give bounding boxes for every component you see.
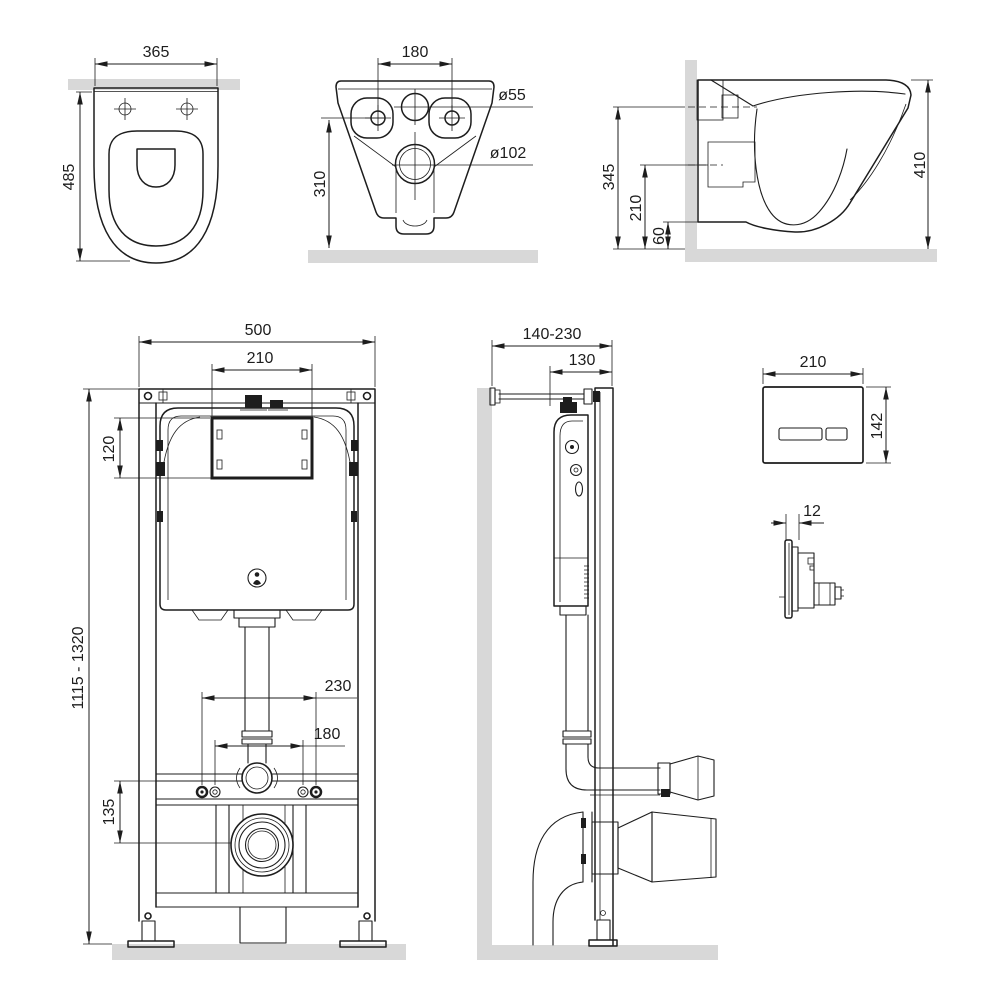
bowl-side-outline [698, 80, 911, 232]
cistern-side-outline [554, 415, 588, 606]
toilet-rear-view: 180 ø55 ø102 310 [308, 44, 538, 263]
mounting-hole-right [176, 98, 198, 120]
floor-surface [685, 249, 937, 262]
flush-plate-side-view: 12 [771, 503, 844, 618]
toilet-top-view: 365 485 [61, 44, 240, 263]
flush-pipe [245, 627, 269, 731]
dim-label-outlet-height: 210 [628, 195, 645, 222]
corner-screw [364, 913, 370, 919]
dim-label-plate-height: 142 [869, 413, 886, 440]
drain-assembly-side [533, 812, 716, 945]
dim-label-window-width: 210 [247, 350, 274, 367]
dim-label-inlet-height: 345 [601, 164, 618, 191]
dim-label-bowl-width: 365 [143, 44, 170, 61]
bowl-inlet-adapter [670, 756, 714, 800]
bowl-outline [94, 88, 218, 263]
dim-label-bolt-spacing: 180 [402, 44, 429, 61]
dim-label-window-height: 120 [101, 436, 118, 463]
dim-label-plate-width: 210 [800, 354, 827, 371]
dim-label-install-height: 1115 - 1320 [70, 626, 87, 709]
dim-label-inlet-diameter: ø55 [498, 87, 526, 104]
drain-outlet [231, 814, 293, 876]
dim-label-outlet-drop: 135 [101, 799, 118, 826]
dim-label-bowl-height: 410 [912, 152, 929, 179]
flush-pipe-connector [242, 763, 272, 793]
frame-side-view: 140-230 130 [477, 326, 718, 960]
dim-label-frame-width: 500 [245, 322, 272, 339]
dim-label-bottom-clearance: 60 [651, 227, 668, 245]
outlet-connector [708, 142, 755, 187]
flush-button-icon [248, 569, 266, 587]
dim-label-rear-height: 310 [312, 171, 329, 198]
inspection-window [212, 418, 312, 478]
toilet-side-view: 345 210 60 410 [601, 60, 937, 262]
flush-pipe-flange [234, 610, 280, 627]
valve-connector [270, 400, 283, 408]
filling-valve-connector [245, 395, 262, 408]
mounting-hole-left [114, 98, 136, 120]
flush-button-small [826, 428, 847, 440]
technical-drawing-sheet: 365 485 180 ø55 [0, 0, 1000, 1000]
dim-label-outlet-diameter: ø102 [490, 145, 527, 162]
bottom-crossbar [156, 893, 358, 907]
cistern-outline [160, 408, 354, 610]
frame-profile [697, 80, 723, 120]
corner-screw [364, 393, 371, 400]
wall-surface [685, 60, 697, 249]
dim-label-outer-stud-spacing: 230 [325, 678, 352, 695]
flush-plate [763, 387, 863, 463]
flush-area-outline [137, 149, 175, 187]
drawing-canvas: 365 485 180 ø55 [0, 0, 1000, 1000]
dim-label-bowl-depth: 485 [61, 164, 78, 191]
flush-button-large [779, 428, 822, 440]
corner-screw [145, 913, 151, 919]
seat-rim-line [753, 91, 905, 106]
flush-plate-front-view: 210 142 [763, 354, 891, 463]
frame-front-view: 1115 - 1320 500 210 120 [70, 322, 406, 960]
dim-label-wall-distance: 140-230 [523, 326, 582, 343]
bolt-hole-right [439, 105, 465, 131]
flush-pipe-side [566, 615, 588, 731]
valve-connector-side [560, 402, 577, 413]
plate-mechanism [798, 553, 814, 608]
drain-box [240, 907, 286, 943]
corner-screw [145, 393, 152, 400]
floor-surface [308, 250, 538, 263]
bowl-inner-curve [755, 109, 847, 225]
dim-label-inner-stud-spacing: 180 [314, 726, 341, 743]
dim-label-plate-thickness: 12 [803, 503, 821, 520]
floor-surface [477, 945, 718, 960]
frame-rail-side [595, 388, 613, 945]
dim-label-frame-depth: 130 [569, 352, 596, 369]
wall-surface [477, 388, 492, 945]
plate-side-profile [785, 540, 792, 618]
